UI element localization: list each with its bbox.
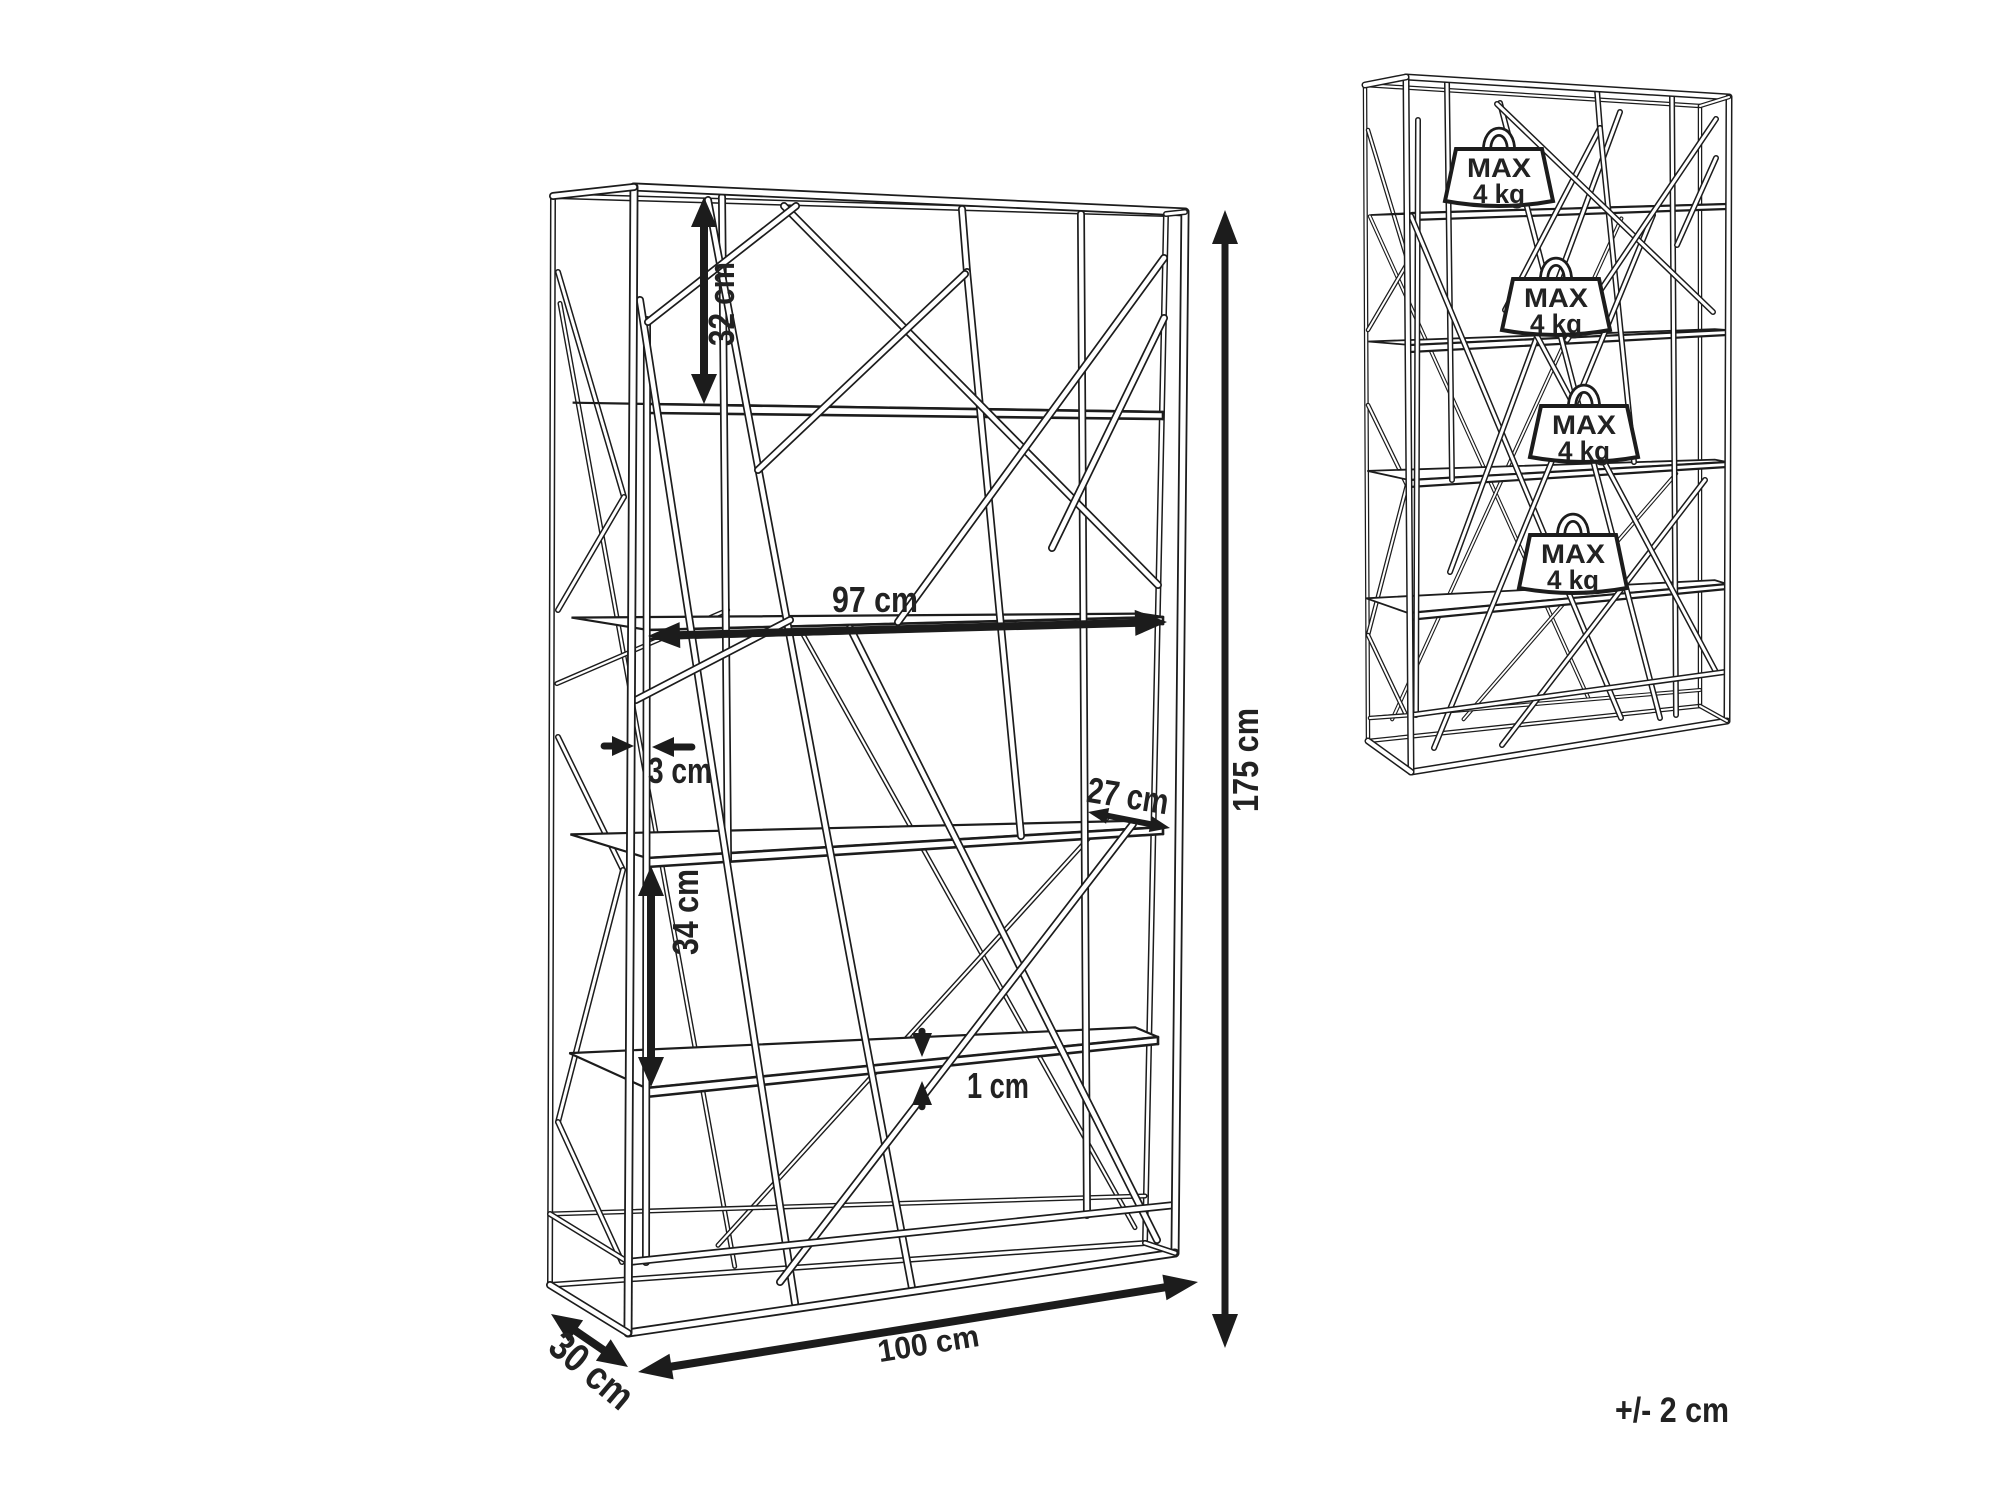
svg-text:34 cm: 34 cm xyxy=(665,869,706,955)
svg-text:4 kg: 4 kg xyxy=(1530,309,1582,339)
svg-text:3 cm: 3 cm xyxy=(648,750,712,791)
svg-text:4 kg: 4 kg xyxy=(1558,436,1610,466)
svg-text:1 cm: 1 cm xyxy=(967,1065,1029,1106)
svg-text:32 cm: 32 cm xyxy=(701,262,742,346)
svg-text:4 kg: 4 kg xyxy=(1473,179,1525,209)
svg-text:175 cm: 175 cm xyxy=(1225,708,1266,812)
svg-text:4 kg: 4 kg xyxy=(1547,565,1599,595)
svg-text:+/- 2 cm: +/- 2 cm xyxy=(1615,1391,1729,1430)
svg-text:97 cm: 97 cm xyxy=(832,579,918,620)
